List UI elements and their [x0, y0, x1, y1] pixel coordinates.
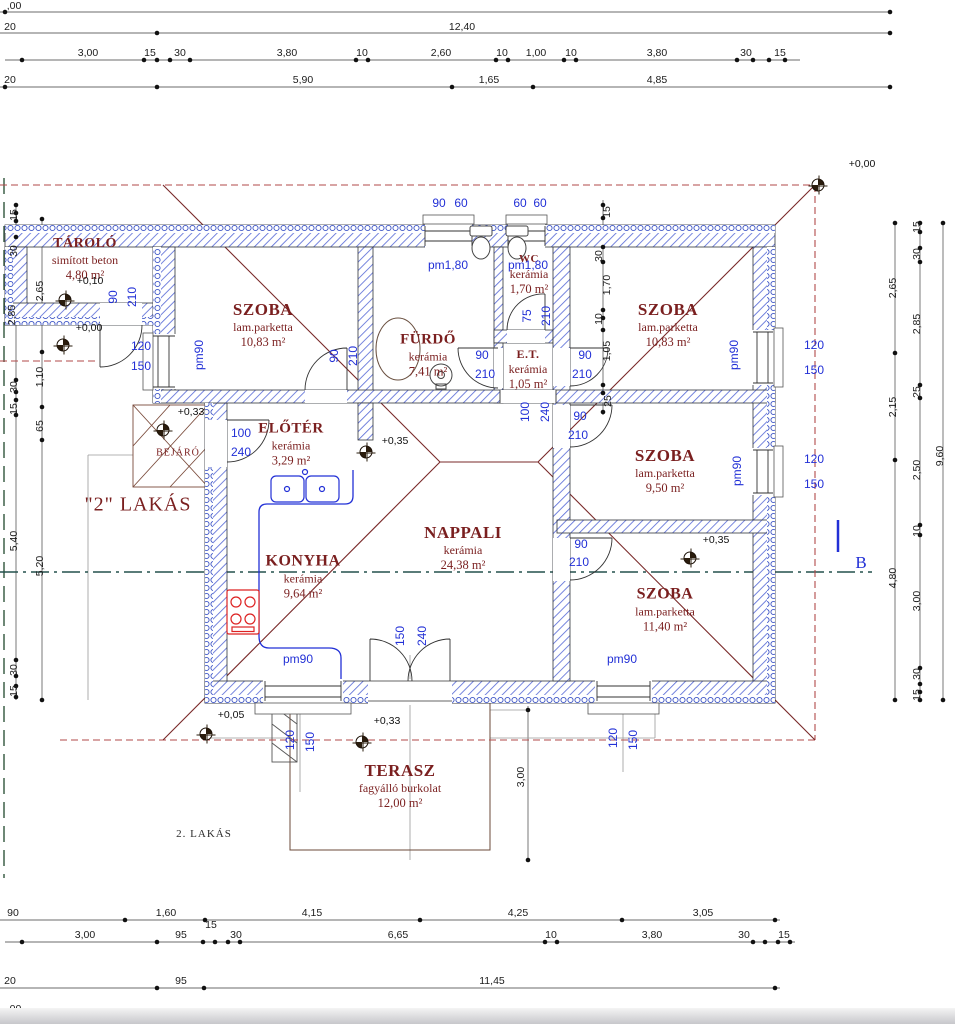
- level-text: +0,05: [218, 709, 245, 721]
- opening-size-label: 210: [125, 287, 139, 307]
- dim-label: 10: [545, 929, 557, 941]
- opening-size-label: 240: [415, 626, 429, 646]
- dim-label: 5,40: [8, 531, 20, 551]
- level-marker: [360, 446, 373, 459]
- room-name: SZOBA: [635, 445, 695, 466]
- opening-size-label: 100: [518, 402, 532, 422]
- dim-label: 10: [911, 525, 923, 537]
- level-marker: [812, 179, 825, 192]
- dim-label: 15: [8, 403, 20, 415]
- opening-size-label: 90: [327, 349, 341, 362]
- room-label-et: E.T.kerámia1,05 m²: [509, 347, 548, 393]
- room-name: SZOBA: [635, 585, 695, 605]
- window-edge: [0, 1008, 955, 1024]
- room-label-eloter: ELŐTÉRkerámia3,29 m²: [258, 419, 324, 468]
- room-area: 9,50 m²: [635, 481, 695, 497]
- room-label-szoba-br: SZOBAlam.parketta11,40 m²: [635, 585, 695, 636]
- dim-label: 15: [8, 685, 20, 697]
- room-area: 10,83 m²: [638, 335, 698, 351]
- unit-label-2-lakas: "2" LAKÁS: [85, 494, 192, 517]
- room-area: 10,83 m²: [233, 335, 293, 351]
- opening-size-label: 150: [804, 477, 824, 491]
- room-name: SZOBA: [233, 299, 293, 320]
- dim-label: 3,05: [693, 907, 713, 919]
- room-name: ELŐTÉR: [258, 419, 324, 438]
- opening-size-label: pm90: [730, 456, 744, 486]
- level-text: +0,00: [76, 322, 103, 334]
- opening-size-label: 210: [346, 346, 360, 366]
- dim-label: 3,00: [911, 591, 923, 611]
- room-finish: fagyálló burkolat: [359, 781, 441, 796]
- dim-label: 10: [565, 47, 577, 59]
- room-name: E.T.: [509, 347, 548, 362]
- dim-label: 15: [205, 919, 217, 931]
- opening-size-label: pm1,80: [508, 258, 548, 272]
- dim-label: 20: [4, 21, 16, 33]
- dim-label: 2,65: [887, 278, 899, 298]
- room-finish: kerámia: [509, 362, 548, 377]
- room-name: SZOBA: [638, 299, 698, 320]
- room-label-szoba-mr: SZOBAlam.parketta9,50 m²: [635, 445, 695, 497]
- opening-size-label: 90: [106, 290, 120, 303]
- opening-size-label: pm90: [607, 652, 637, 666]
- room-name: TERASZ: [359, 760, 441, 781]
- dim-label: 30: [911, 248, 923, 260]
- dim-label: 30: [740, 47, 752, 59]
- opening-size-label: 75: [520, 309, 534, 322]
- dim-label: 30: [174, 47, 186, 59]
- room-area: 3,29 m²: [258, 453, 324, 469]
- level-marker: [200, 728, 213, 741]
- opening-size-label: 90: [578, 348, 591, 362]
- dim-label: 1,65: [479, 74, 499, 86]
- opening-size-label: pm90: [192, 340, 206, 370]
- opening-size-label: 120: [804, 452, 824, 466]
- opening-size-label: 120: [131, 339, 151, 353]
- room-finish: lam.parketta: [635, 466, 695, 481]
- dim-label: 25: [602, 395, 614, 407]
- opening-size-label: 120: [804, 338, 824, 352]
- room-finish: lam.parketta: [233, 320, 293, 335]
- dim-label: 6,65: [388, 929, 408, 941]
- opening-size-label: 90: [573, 409, 586, 423]
- opening-size-label: 90: [432, 196, 445, 210]
- dim-label: 1,10: [34, 367, 46, 387]
- room-finish: lam.parketta: [635, 605, 695, 620]
- level-marker: [356, 736, 369, 749]
- level-text: +0,10: [77, 275, 104, 287]
- opening-size-label: 240: [538, 402, 552, 422]
- room-finish: kerámia: [424, 543, 502, 558]
- room-name: KONYHA: [266, 552, 341, 572]
- dim-label: 15: [8, 209, 20, 221]
- room-area: 12,00 m²: [359, 796, 441, 812]
- level-marker: [684, 552, 697, 565]
- dim-label: 4,25: [508, 907, 528, 919]
- dim-label: 1,70: [601, 275, 613, 295]
- unit-label-2-lakas-small: 2. LAKÁS: [176, 828, 232, 840]
- dim-label: 15: [778, 929, 790, 941]
- dim-label: 25: [911, 386, 923, 398]
- opening-size-label: 120: [606, 728, 620, 748]
- dim-label: 1,05: [601, 341, 613, 361]
- level-text: +0,33: [178, 406, 205, 418]
- room-label-furdo: FÜRDŐkerámia7,41 m²: [400, 330, 456, 379]
- dim-label: 2,85: [6, 305, 18, 325]
- dim-label: ,00: [7, 0, 22, 12]
- level-text: +0,33: [374, 715, 401, 727]
- room-label-szoba-tr: SZOBAlam.parketta10,83 m²: [638, 299, 698, 351]
- annotation-layer: "2" LAKÁS 2. LAKÁS BEJÁRÓ B TÁROLÓsimíto…: [0, 0, 955, 1024]
- opening-size-label: pm90: [283, 652, 313, 666]
- dim-label: 2,60: [431, 47, 451, 59]
- room-area: 11,40 m²: [635, 620, 695, 636]
- opening-size-label: 210: [568, 428, 588, 442]
- opening-size-label: 150: [303, 732, 317, 752]
- dim-label: 10: [356, 47, 368, 59]
- level-marker: [57, 339, 70, 352]
- dim-label: 30: [8, 664, 20, 676]
- dim-label: 4,85: [647, 74, 667, 86]
- dim-label: 15: [911, 689, 923, 701]
- dim-label: 10: [496, 47, 508, 59]
- room-name: FÜRDŐ: [400, 330, 456, 349]
- opening-size-label: 150: [393, 626, 407, 646]
- dim-label: 5,20: [34, 556, 46, 576]
- room-finish: simított beton: [52, 252, 118, 267]
- room-area: 7,41 m²: [400, 364, 456, 380]
- room-label-nappali: NAPPALIkerámia24,38 m²: [424, 522, 502, 574]
- room-finish: kerámia: [258, 438, 324, 453]
- opening-size-label: 210: [475, 367, 495, 381]
- dim-label: 95: [175, 975, 187, 987]
- room-finish: kerámia: [266, 572, 341, 587]
- room-finish: kerámia: [400, 349, 456, 364]
- opening-size-label: 60: [513, 196, 526, 210]
- dim-label: 15: [601, 206, 613, 218]
- room-label-szoba-tl: SZOBAlam.parketta10,83 m²: [233, 299, 293, 351]
- floor-plan: "2" LAKÁS 2. LAKÁS BEJÁRÓ B TÁROLÓsimíto…: [0, 0, 955, 1024]
- dim-label: 65: [34, 420, 46, 432]
- level-text: +0,35: [703, 534, 730, 546]
- dim-label: 4,15: [302, 907, 322, 919]
- room-label-terasz: TERASZfagyálló burkolat12,00 m²: [359, 760, 441, 812]
- dim-label: 30: [593, 250, 605, 262]
- entrance-label: BEJÁRÓ: [156, 448, 200, 459]
- dim-label: 5,90: [293, 74, 313, 86]
- opening-size-label: 90: [475, 348, 488, 362]
- dim-label: 30: [230, 929, 242, 941]
- opening-size-label: 100: [231, 426, 251, 440]
- dim-label: 3,00: [515, 767, 527, 787]
- opening-size-label: 210: [572, 367, 592, 381]
- dim-label: 3,80: [642, 929, 662, 941]
- level-marker: [157, 424, 170, 437]
- dim-label: 2,50: [911, 460, 923, 480]
- dim-label: 15: [774, 47, 786, 59]
- dim-label: 12,40: [449, 21, 475, 33]
- opening-size-label: 150: [626, 730, 640, 750]
- dim-label: 2,15: [887, 397, 899, 417]
- dim-label: 10: [593, 313, 605, 325]
- dim-label: 9,60: [934, 446, 946, 466]
- opening-size-label: 150: [131, 359, 151, 373]
- opening-size-label: 90: [574, 537, 587, 551]
- dim-label: 3,80: [277, 47, 297, 59]
- dim-label: 11,45: [479, 975, 505, 987]
- dim-label: 15: [911, 221, 923, 233]
- opening-size-label: 240: [231, 445, 251, 459]
- dim-label: 2,85: [911, 314, 923, 334]
- opening-size-label: pm1,80: [428, 258, 468, 272]
- room-finish: lam.parketta: [638, 320, 698, 335]
- dim-label: 1,60: [156, 907, 176, 919]
- room-area: 1,05 m²: [509, 377, 548, 393]
- dim-label: 30: [8, 381, 20, 393]
- room-name: TÁROLÓ: [52, 235, 118, 253]
- dim-label: 4,80: [887, 568, 899, 588]
- level-text: +0,00: [849, 158, 876, 170]
- opening-size-label: pm90: [727, 340, 741, 370]
- dim-label: 15: [144, 47, 156, 59]
- level-marker: [59, 294, 72, 307]
- opening-size-label: 210: [569, 555, 589, 569]
- opening-size-label: 150: [804, 363, 824, 377]
- room-label-konyha: KONYHAkerámia9,64 m²: [266, 552, 341, 603]
- dim-label: 2,65: [34, 281, 46, 301]
- level-text: +0,35: [382, 435, 409, 447]
- dim-label: 30: [911, 668, 923, 680]
- room-area: 24,38 m²: [424, 558, 502, 574]
- room-name: NAPPALI: [424, 522, 502, 543]
- dim-label: 30: [8, 245, 20, 257]
- dim-label: 3,00: [78, 47, 98, 59]
- dim-label: 30: [738, 929, 750, 941]
- dim-label: 95: [175, 929, 187, 941]
- dim-label: 3,00: [75, 929, 95, 941]
- opening-size-label: 60: [454, 196, 467, 210]
- dim-label: 1,00: [526, 47, 546, 59]
- room-area: 1,70 m²: [510, 282, 549, 298]
- opening-size-label: 60: [533, 196, 546, 210]
- dim-label: 20: [4, 74, 16, 86]
- dim-label: 90: [7, 907, 19, 919]
- dim-label: 20: [4, 975, 16, 987]
- section-letter-b: B: [855, 553, 866, 573]
- room-area: 9,64 m²: [266, 587, 341, 603]
- dim-label: 3,80: [647, 47, 667, 59]
- opening-size-label: 120: [283, 730, 297, 750]
- opening-size-label: 210: [539, 306, 553, 326]
